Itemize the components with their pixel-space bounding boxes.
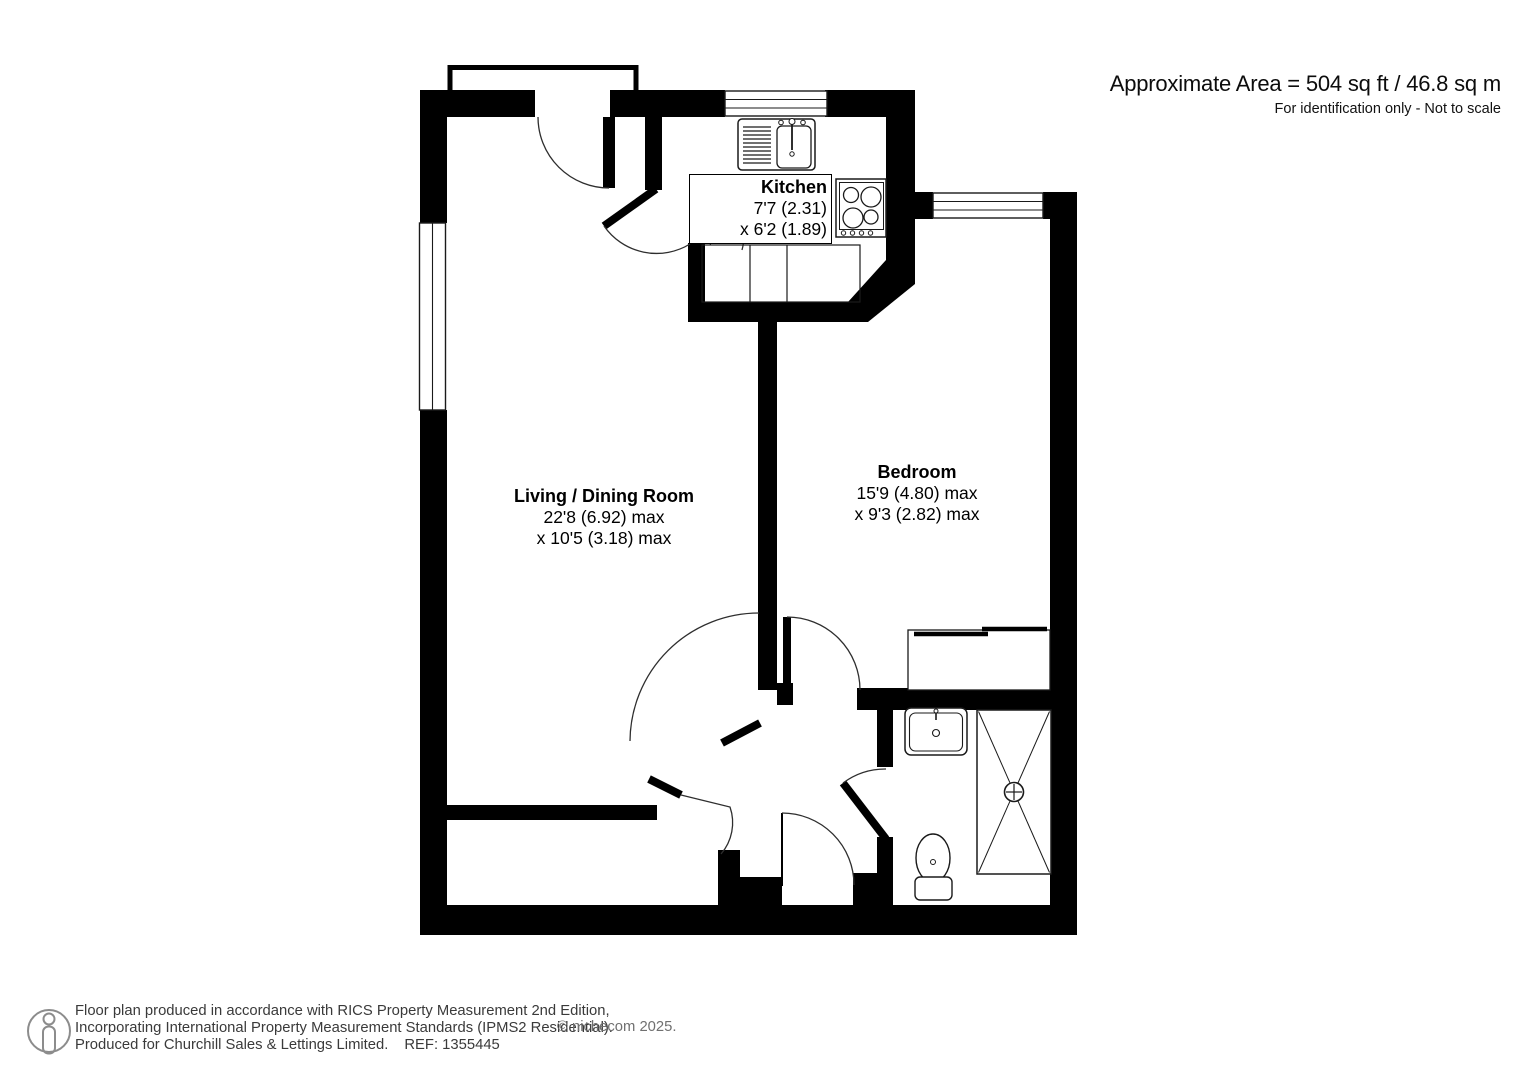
entrance-door-leaf bbox=[603, 117, 615, 188]
footer-line-2: Incorporating International Property Mea… bbox=[75, 1020, 613, 1037]
hall-door-arc bbox=[630, 613, 759, 741]
bedroom-name: Bedroom bbox=[787, 461, 1047, 483]
footer-line-1: Floor plan produced in accordance with R… bbox=[75, 1003, 613, 1020]
bathroom-fixtures bbox=[905, 708, 1051, 900]
kitchen-diagonal-wall bbox=[848, 260, 915, 322]
footer-line-3: Produced for Churchill Sales & Lettings … bbox=[75, 1037, 613, 1054]
floorplan-page: Approximate Area = 504 sq ft / 46.8 sq m… bbox=[0, 0, 1527, 1080]
lobby-door-arc bbox=[782, 813, 854, 885]
kitchen-door-leaf bbox=[604, 189, 656, 226]
living-room-label: Living / Dining Room 22'8 (6.92) max x 1… bbox=[474, 485, 734, 549]
floorplan-drawing bbox=[0, 0, 1527, 1080]
bedroom-door-leaf bbox=[783, 617, 791, 690]
living-room-door-leaf bbox=[649, 779, 681, 795]
footer-disclaimer: Floor plan produced in accordance with R… bbox=[75, 1003, 613, 1054]
scale-disclaimer-text: For identification only - Not to scale bbox=[1110, 101, 1501, 117]
kitchen-counter bbox=[702, 245, 860, 302]
entrance-porch bbox=[450, 68, 636, 91]
entrance-door-arc bbox=[538, 117, 609, 188]
bedroom-window bbox=[933, 193, 1043, 218]
shower-tray-icon bbox=[977, 710, 1051, 874]
living-room-dim-2: x 10'5 (3.18) max bbox=[474, 528, 734, 549]
living-room-name: Living / Dining Room bbox=[474, 485, 734, 507]
footer-ref: REF: 1355445 bbox=[404, 1037, 499, 1053]
bathroom-door-arc bbox=[843, 769, 886, 783]
living-room-dim-1: 22'8 (6.92) max bbox=[474, 507, 734, 528]
person-badge-icon bbox=[26, 1002, 72, 1060]
kitchen-label: Kitchen 7'7 (2.31) x 6'2 (1.89) bbox=[689, 174, 832, 244]
kitchen-window bbox=[725, 91, 827, 116]
toilet-icon bbox=[915, 834, 952, 900]
bedroom-door-arc bbox=[787, 617, 860, 690]
approximate-area-text: Approximate Area = 504 sq ft / 46.8 sq m bbox=[1110, 71, 1501, 97]
header: Approximate Area = 504 sq ft / 46.8 sq m… bbox=[1110, 71, 1501, 117]
wardrobe-icon bbox=[908, 629, 1050, 690]
bedroom-dim-1: 15'9 (4.80) max bbox=[787, 483, 1047, 504]
bedroom-dim-2: x 9'3 (2.82) max bbox=[787, 504, 1047, 525]
hall-door-leaf bbox=[722, 723, 760, 743]
kitchen-sink-icon bbox=[738, 119, 815, 171]
basin-icon bbox=[905, 708, 967, 755]
kitchen-dim-1: 7'7 (2.31) bbox=[690, 198, 827, 219]
hob-icon bbox=[836, 179, 886, 237]
kitchen-name: Kitchen bbox=[690, 176, 827, 198]
windows bbox=[420, 91, 1044, 410]
copyright-text: © nichecom 2025. bbox=[557, 1019, 676, 1035]
kitchen-door-arc bbox=[604, 226, 690, 253]
kitchen-dim-2: x 6'2 (1.89) bbox=[690, 219, 827, 240]
bedroom-label: Bedroom 15'9 (4.80) max x 9'3 (2.82) max bbox=[787, 461, 1047, 525]
bathroom-door-leaf bbox=[843, 783, 886, 839]
living-room-window bbox=[420, 223, 446, 410]
living-room-door-arc bbox=[681, 795, 733, 854]
